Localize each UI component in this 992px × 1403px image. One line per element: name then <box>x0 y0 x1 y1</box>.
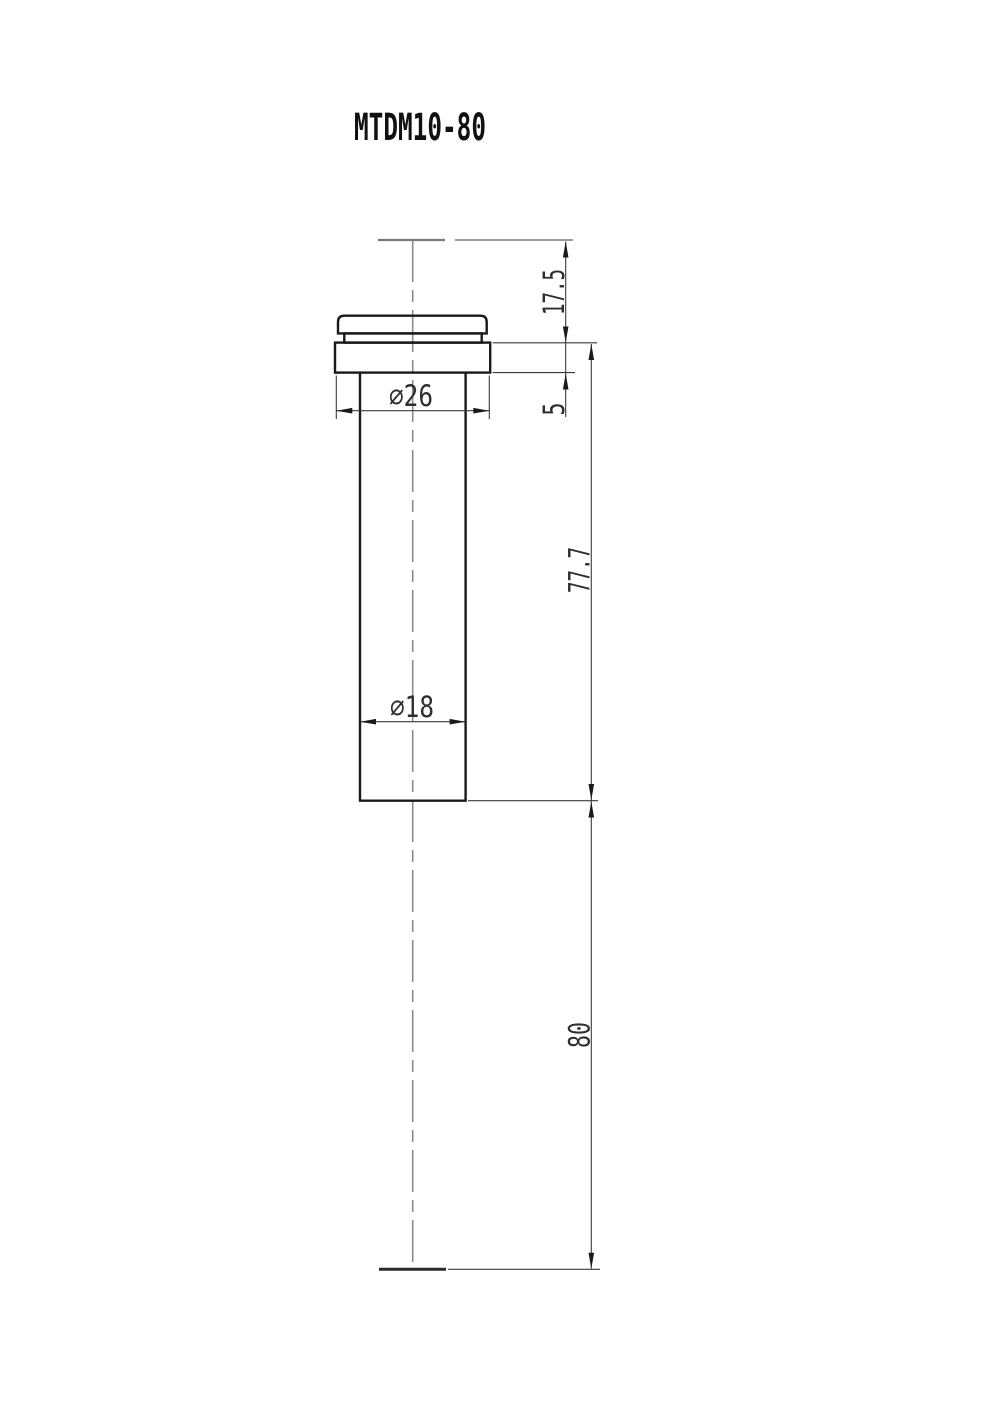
dimension-label-77-7: 77.7 <box>563 547 597 593</box>
drawing-title: MTDM10-80 <box>354 106 486 149</box>
arrowhead-up-icon <box>589 344 595 360</box>
arrowhead-down-icon <box>589 784 595 800</box>
arrowhead-left-icon <box>360 719 376 725</box>
dimension-label-5: 5 <box>537 403 571 416</box>
arrowhead-right-icon <box>450 719 466 725</box>
arrowhead-down-icon <box>563 327 569 343</box>
dimension-17-5: 17.5 <box>537 242 571 418</box>
drawing-page: MTDM10-80 <box>0 0 992 1403</box>
arrowhead-down-icon <box>589 1253 595 1269</box>
dimension-label-dia-18: ⌀18 <box>390 690 434 724</box>
dimension-label-dia-26: ⌀26 <box>389 379 433 413</box>
arrowhead-left-icon <box>336 408 352 414</box>
technical-drawing-canvas: MTDM10-80 <box>0 0 992 1403</box>
arrowhead-up-icon <box>589 802 595 818</box>
arrowhead-up-icon <box>563 374 569 390</box>
dimension-label-80: 80 <box>563 1022 597 1048</box>
arrowhead-up-icon <box>563 242 569 258</box>
arrowhead-right-icon <box>473 408 489 414</box>
dimension-dia-18: ⌀18 <box>360 690 466 725</box>
dimension-label-17-5: 17.5 <box>537 269 571 315</box>
